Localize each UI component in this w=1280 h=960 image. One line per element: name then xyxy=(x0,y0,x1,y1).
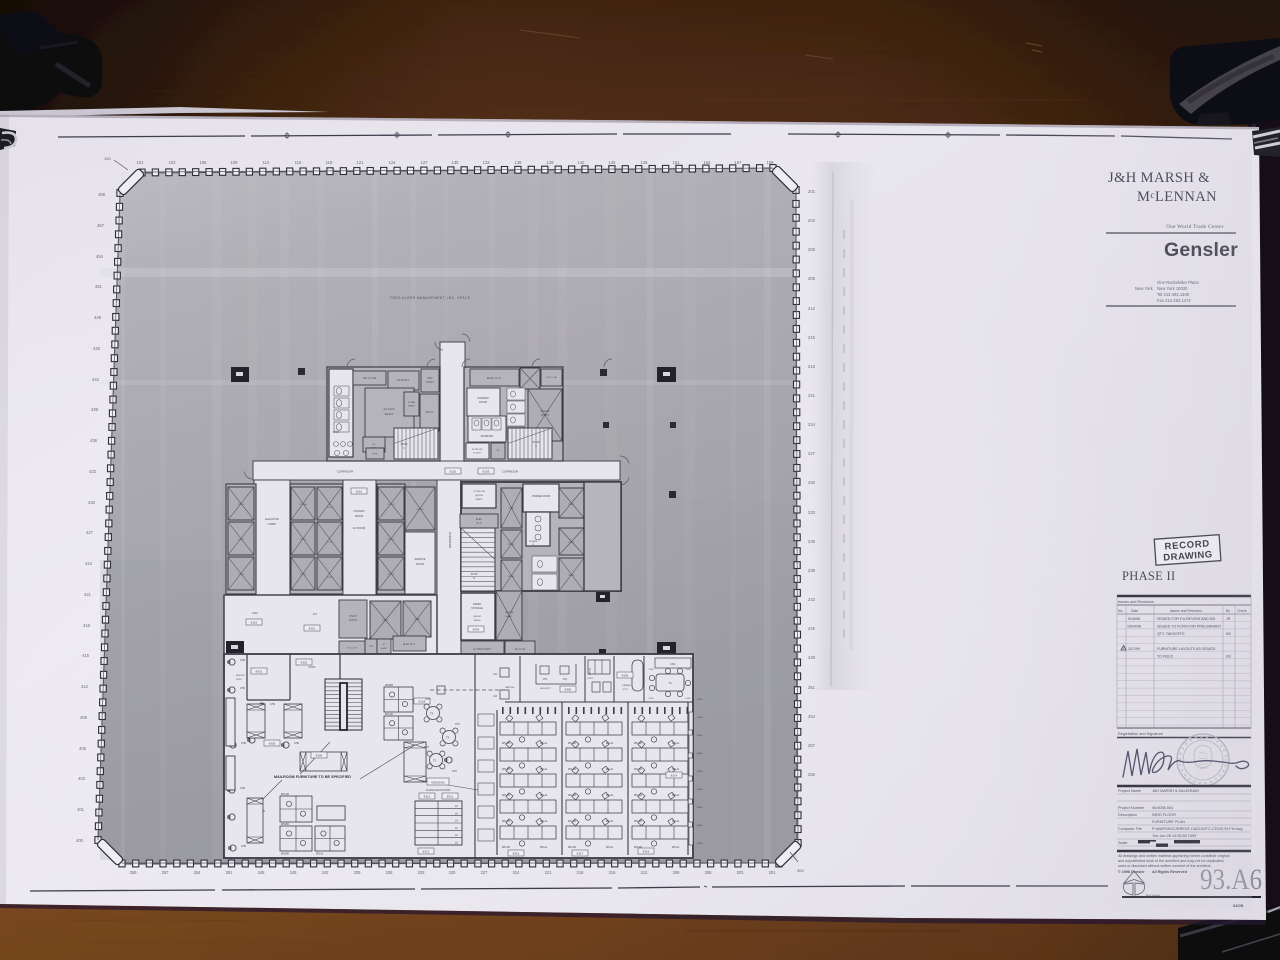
svg-text:C: C xyxy=(403,447,405,450)
svg-text:333: 333 xyxy=(418,870,426,875)
svg-text:F36.5: F36.5 xyxy=(697,771,703,773)
svg-text:F36.5: F36.5 xyxy=(697,717,703,719)
svg-text:PT/F6: PT/F6 xyxy=(327,542,334,544)
svg-text:SPACE: SPACE xyxy=(473,619,481,622)
svg-text:CH7: CH7 xyxy=(452,770,457,773)
svg-text:ELEC: ELEC xyxy=(476,518,483,521)
svg-text:CH9: CH9 xyxy=(270,703,275,706)
svg-text:121: 121 xyxy=(357,160,365,165)
svg-text:SHAFT: SHAFT xyxy=(408,405,416,408)
svg-text:PT/F9: PT/F9 xyxy=(508,508,514,510)
svg-text:F36.5: F36.5 xyxy=(697,807,703,809)
svg-text:ELEC CL N: ELEC CL N xyxy=(487,376,501,380)
svg-text:CH10: CH10 xyxy=(685,698,691,700)
svg-text:PT/F21: PT/F21 xyxy=(387,539,395,541)
svg-text:SHAFT: SHAFT xyxy=(541,414,549,417)
svg-text:COPY: COPY xyxy=(622,689,629,691)
svg-text:300: 300 xyxy=(797,868,804,873)
svg-text:SECURITY: SECURITY xyxy=(540,688,552,690)
svg-text:8102: 8102 xyxy=(450,470,457,474)
svg-text:159: 159 xyxy=(767,160,775,165)
svg-text:109: 109 xyxy=(231,160,239,165)
svg-text:PT/F7: PT/F7 xyxy=(327,577,334,579)
svg-text:TEL CL NW: TEL CL NW xyxy=(363,376,377,380)
svg-text:CH9: CH9 xyxy=(241,845,246,848)
svg-text:348: 348 xyxy=(258,870,266,875)
svg-text:WOMEN#1: WOMEN#1 xyxy=(481,435,494,438)
svg-text:106: 106 xyxy=(200,160,208,165)
svg-text:315: 315 xyxy=(609,870,617,875)
svg-text:CORRIDOR: CORRIDOR xyxy=(448,532,452,549)
svg-text:8311: 8311 xyxy=(447,795,454,799)
svg-text:148: 148 xyxy=(641,160,649,165)
svg-text:CH9: CH9 xyxy=(241,742,246,745)
svg-text:409: 409 xyxy=(80,715,88,720)
svg-text:STORE RM: STORE RM xyxy=(473,491,485,493)
svg-text:215: 215 xyxy=(808,335,816,340)
svg-text:8302: 8302 xyxy=(301,661,308,665)
svg-text:CH9: CH9 xyxy=(240,659,245,662)
svg-text:EL CL 1E: EL CL 1E xyxy=(515,648,525,651)
svg-text:412: 412 xyxy=(81,684,89,689)
svg-text:CH9: CH9 xyxy=(240,687,245,690)
svg-text:F36.5: F36.5 xyxy=(697,699,703,701)
svg-text:354: 354 xyxy=(194,870,202,875)
svg-text:10Y: 10Y xyxy=(313,613,318,616)
svg-text:8334: 8334 xyxy=(473,628,480,632)
svg-text:F36.5: F36.5 xyxy=(697,753,703,755)
svg-text:A/V ROOM: A/V ROOM xyxy=(353,527,366,530)
svg-text:WCR: WCR xyxy=(333,430,339,434)
svg-text:STAIR: STAIR xyxy=(401,443,408,446)
svg-text:154: 154 xyxy=(704,160,712,165)
svg-text:SORT: SORT xyxy=(308,665,316,669)
svg-text:COPY: COPY xyxy=(587,678,594,680)
svg-text:PT/F4A: PT/F4A xyxy=(299,503,307,506)
svg-text:303: 303 xyxy=(737,870,745,875)
svg-text:CH7: CH7 xyxy=(425,698,430,701)
svg-text:430: 430 xyxy=(88,500,96,505)
svg-text:TEL CL NE: TEL CL NE xyxy=(546,377,557,379)
svg-text:8318: 8318 xyxy=(643,850,650,854)
svg-text:100A: 100A xyxy=(252,612,258,615)
svg-text:CH10: CH10 xyxy=(685,669,691,671)
svg-text:WS.AL: WS.AL xyxy=(316,852,324,855)
svg-text:8317: 8317 xyxy=(577,852,584,856)
svg-text:COM/WM: COM/WM xyxy=(354,510,365,513)
svg-text:224: 224 xyxy=(808,422,816,427)
svg-text:PT/F5: PT/F5 xyxy=(327,507,334,509)
svg-text:STAIR: STAIR xyxy=(471,573,478,576)
svg-text:F36.5: F36.5 xyxy=(697,789,703,791)
svg-text:PT/F10: PT/F10 xyxy=(416,509,424,511)
svg-text:WS.AL: WS.AL xyxy=(606,846,614,849)
svg-text:CH7: CH7 xyxy=(424,746,429,749)
svg-text:239: 239 xyxy=(808,568,816,573)
svg-text:WS.BR: WS.BR xyxy=(385,684,393,687)
svg-text:139: 139 xyxy=(547,160,555,165)
svg-text:8201: 8201 xyxy=(309,627,316,631)
svg-text:AC PIPE SHAFT: AC PIPE SHAFT xyxy=(473,648,491,651)
svg-text:ROOM: ROOM xyxy=(416,563,424,566)
svg-text:WS.AR: WS.AR xyxy=(568,846,576,849)
svg-text:STEAM: STEAM xyxy=(408,401,416,404)
svg-text:(B)/WM: (B)/WM xyxy=(475,495,483,497)
svg-text:339: 339 xyxy=(354,870,362,875)
svg-text:227: 227 xyxy=(808,451,816,456)
svg-text:8306: 8306 xyxy=(316,754,323,758)
svg-text:236: 236 xyxy=(808,539,816,544)
svg-text:124: 124 xyxy=(389,160,397,165)
svg-text:324: 324 xyxy=(513,870,521,875)
svg-text:312: 312 xyxy=(641,870,649,875)
svg-text:445: 445 xyxy=(93,346,101,351)
svg-text:F36.5: F36.5 xyxy=(697,735,703,737)
svg-text:427: 427 xyxy=(86,530,94,535)
svg-text:WAITING: WAITING xyxy=(505,686,515,689)
svg-text:306: 306 xyxy=(705,870,713,875)
svg-text:SANITA: SANITA xyxy=(505,611,513,614)
svg-text:CH10: CH10 xyxy=(648,669,654,671)
svg-text:CH9: CH9 xyxy=(294,742,299,745)
svg-text:209: 209 xyxy=(808,276,816,281)
svg-text:PT/F7: PT/F7 xyxy=(382,620,389,622)
svg-text:451: 451 xyxy=(95,284,103,289)
svg-text:SHAFT: SHAFT xyxy=(381,647,388,650)
svg-text:201: 201 xyxy=(808,189,816,194)
svg-text:257: 257 xyxy=(808,743,816,748)
svg-text:F36.5: F36.5 xyxy=(697,843,703,845)
svg-text:SHAFT: SHAFT xyxy=(505,615,513,618)
svg-text:327: 327 xyxy=(481,870,489,875)
svg-text:439: 439 xyxy=(91,407,99,412)
svg-text:203: 203 xyxy=(808,218,816,223)
svg-text:415: 415 xyxy=(82,653,90,658)
svg-text:SPACE: SPACE xyxy=(355,515,364,518)
svg-text:112: 112 xyxy=(263,160,270,165)
svg-text:STORAGE: STORAGE xyxy=(471,607,483,610)
svg-text:ELEC CL S: ELEC CL S xyxy=(403,643,416,646)
svg-text:115: 115 xyxy=(295,160,302,165)
svg-text:SHAFT: SHAFT xyxy=(384,412,393,416)
svg-text:WS.4A: WS.4A xyxy=(588,668,591,675)
svg-text:8301: 8301 xyxy=(256,670,263,674)
svg-text:WS.AL: WS.AL xyxy=(672,846,680,849)
svg-text:218: 218 xyxy=(808,364,816,369)
svg-text:442: 442 xyxy=(92,377,100,382)
svg-text:CH10: CH10 xyxy=(648,698,654,700)
svg-text:157: 157 xyxy=(735,160,743,165)
svg-text:251: 251 xyxy=(808,685,816,690)
svg-text:357: 357 xyxy=(162,870,170,875)
svg-text:PT/F14: PT/F14 xyxy=(508,544,515,546)
svg-text:PT/F20: PT/F20 xyxy=(387,504,395,506)
svg-text:8151: 8151 xyxy=(251,621,258,625)
svg-text:433: 433 xyxy=(89,469,97,474)
svg-text:345: 345 xyxy=(290,870,298,875)
svg-text:118: 118 xyxy=(326,160,333,165)
svg-text:8312: 8312 xyxy=(424,795,431,799)
svg-text:8305: 8305 xyxy=(269,742,276,746)
svg-text:PT/F7: PT/F7 xyxy=(568,542,574,544)
svg-text:8316: 8316 xyxy=(513,852,520,856)
svg-text:151: 151 xyxy=(673,160,681,165)
svg-text:WS.AR: WS.AR xyxy=(281,793,289,796)
svg-text:221: 221 xyxy=(808,393,816,398)
svg-text:SERVICE: SERVICE xyxy=(415,558,426,561)
svg-text:EL CL GM: EL CL GM xyxy=(347,648,357,650)
svg-text:CL C: CL C xyxy=(476,522,482,525)
svg-text:PIPE: PIPE xyxy=(373,454,378,456)
svg-text:8305: 8305 xyxy=(565,688,572,692)
svg-text:PIPE: PIPE xyxy=(427,377,433,380)
svg-text:LIBRARY: LIBRARY xyxy=(622,684,632,687)
svg-text:233: 233 xyxy=(808,510,816,515)
svg-text:130: 130 xyxy=(452,160,460,165)
svg-text:457: 457 xyxy=(97,223,105,228)
svg-text:SHAFT: SHAFT xyxy=(349,615,357,618)
svg-text:103: 103 xyxy=(169,160,177,165)
svg-text:301: 301 xyxy=(769,870,777,875)
svg-text:418: 418 xyxy=(83,623,91,628)
svg-text:SANITA: SANITA xyxy=(349,619,358,622)
svg-text:SORT: SORT xyxy=(236,679,243,681)
svg-text:POWDER ROOM: POWDER ROOM xyxy=(532,496,550,498)
svg-text:SA & RA: SA & RA xyxy=(540,410,550,413)
svg-text:101: 101 xyxy=(137,160,145,165)
svg-text:STAIR: STAIR xyxy=(533,441,540,444)
svg-text:SPACE: SPACE xyxy=(475,498,483,501)
svg-text:8110: 8110 xyxy=(356,490,363,494)
svg-text:CR1: CR1 xyxy=(670,662,676,666)
svg-text:PT/F1: PT/F1 xyxy=(238,539,245,541)
svg-text:STORE RM: STORE RM xyxy=(472,449,483,451)
svg-text:8103: 8103 xyxy=(483,470,490,474)
svg-text:WOMEN: WOMEN xyxy=(529,541,537,543)
svg-text:CORRIDOR: CORRIDOR xyxy=(337,470,354,474)
svg-text:CHANGING ROOMS: CHANGING ROOMS xyxy=(426,788,451,792)
svg-text:CH9: CH9 xyxy=(240,787,245,790)
svg-text:POWDER: POWDER xyxy=(477,397,488,400)
svg-text:436: 436 xyxy=(90,438,98,443)
svg-text:136: 136 xyxy=(515,160,523,165)
svg-text:SA SHAFT: SA SHAFT xyxy=(397,378,410,382)
svg-text:WS.AR: WS.AR xyxy=(385,713,393,716)
svg-text:245: 245 xyxy=(808,626,816,631)
svg-text:LOBBY: LOBBY xyxy=(268,522,277,526)
svg-text:206: 206 xyxy=(808,247,816,252)
svg-text:330: 330 xyxy=(449,870,457,875)
svg-text:(B)/WM: (B)/WM xyxy=(473,616,481,618)
svg-text:WS.AL: WS.AL xyxy=(540,846,548,849)
svg-text:DUM: DUM xyxy=(415,619,420,621)
svg-text:VENDING: VENDING xyxy=(431,781,445,785)
svg-text:342: 342 xyxy=(322,870,330,875)
svg-text:401: 401 xyxy=(77,807,85,812)
svg-text:230: 230 xyxy=(808,480,816,485)
svg-text:PT/F22: PT/F22 xyxy=(387,574,395,576)
svg-text:8314: 8314 xyxy=(671,774,678,778)
svg-text:REPORT: REPORT xyxy=(236,675,246,677)
svg-text:L62: L62 xyxy=(493,673,498,676)
svg-text:PT/F4: PT/F4 xyxy=(300,574,307,576)
svg-text:AC: AC xyxy=(372,443,375,446)
svg-text:F36.5: F36.5 xyxy=(697,825,703,827)
svg-text:ELEVATOR: ELEVATOR xyxy=(265,517,279,521)
svg-text:PT/F12: PT/F12 xyxy=(508,576,515,578)
svg-text:403: 403 xyxy=(78,776,86,781)
svg-text:PT/F3: PT/F3 xyxy=(238,574,245,576)
svg-text:WS.AR: WS.AR xyxy=(502,846,510,849)
svg-text:PT/F8: PT/F8 xyxy=(568,504,574,506)
svg-text:AIR CL: AIR CL xyxy=(425,411,434,414)
svg-text:L63: L63 xyxy=(493,695,498,698)
svg-text:259: 259 xyxy=(808,772,816,777)
svg-text:CH1: CH1 xyxy=(563,679,568,681)
svg-text:CH7: CH7 xyxy=(455,723,460,726)
svg-text:212: 212 xyxy=(808,306,816,311)
svg-text:336: 336 xyxy=(386,870,394,875)
svg-text:351: 351 xyxy=(226,870,234,875)
svg-text:WS.BR: WS.BR xyxy=(281,852,289,855)
svg-text:359: 359 xyxy=(130,870,138,875)
svg-text:424: 424 xyxy=(85,561,93,566)
svg-text:421: 421 xyxy=(84,592,92,597)
svg-text:PT/F5: PT/F5 xyxy=(300,539,307,541)
svg-text:SA & RA: SA & RA xyxy=(384,407,395,411)
svg-text:127: 127 xyxy=(421,160,429,165)
svg-text:PT/F2: PT/F2 xyxy=(238,504,245,506)
svg-text:318: 318 xyxy=(577,870,585,875)
svg-text:400: 400 xyxy=(76,838,84,843)
svg-text:100: 100 xyxy=(104,156,111,161)
svg-text:WS.BR: WS.BR xyxy=(281,823,289,826)
svg-text:CH1: CH1 xyxy=(543,679,548,681)
svg-text:SHAFT: SHAFT xyxy=(426,381,434,384)
svg-text:309: 309 xyxy=(673,870,681,875)
svg-text:458: 458 xyxy=(98,192,106,197)
svg-text:CORRIDOR: CORRIDOR xyxy=(502,470,519,474)
svg-text:145: 145 xyxy=(609,160,617,165)
svg-text:MAILROOM FURNITURE TO BE SPECI: MAILROOM FURNITURE TO BE SPECIFIED xyxy=(274,775,351,779)
svg-text:142: 142 xyxy=(578,160,586,165)
svg-text:406: 406 xyxy=(79,746,87,751)
svg-text:PT/F6: PT/F6 xyxy=(568,575,574,577)
svg-text:13 SQFT: 13 SQFT xyxy=(473,453,482,455)
svg-text:448: 448 xyxy=(94,315,102,320)
svg-text:PAPER: PAPER xyxy=(473,603,481,606)
svg-text:254: 254 xyxy=(808,714,816,719)
svg-text:242: 242 xyxy=(808,597,816,602)
svg-text:8306: 8306 xyxy=(622,674,629,678)
svg-text:ROOM: ROOM xyxy=(479,401,487,404)
svg-text:133: 133 xyxy=(483,160,491,165)
svg-text:454: 454 xyxy=(96,254,104,259)
svg-text:321: 321 xyxy=(545,870,553,875)
svg-text:8313: 8313 xyxy=(423,850,430,854)
svg-text:248: 248 xyxy=(808,655,816,660)
svg-text:FRED ALGER MANAGEMENT, INC. SP: FRED ALGER MANAGEMENT, INC. SPACE xyxy=(390,296,471,300)
